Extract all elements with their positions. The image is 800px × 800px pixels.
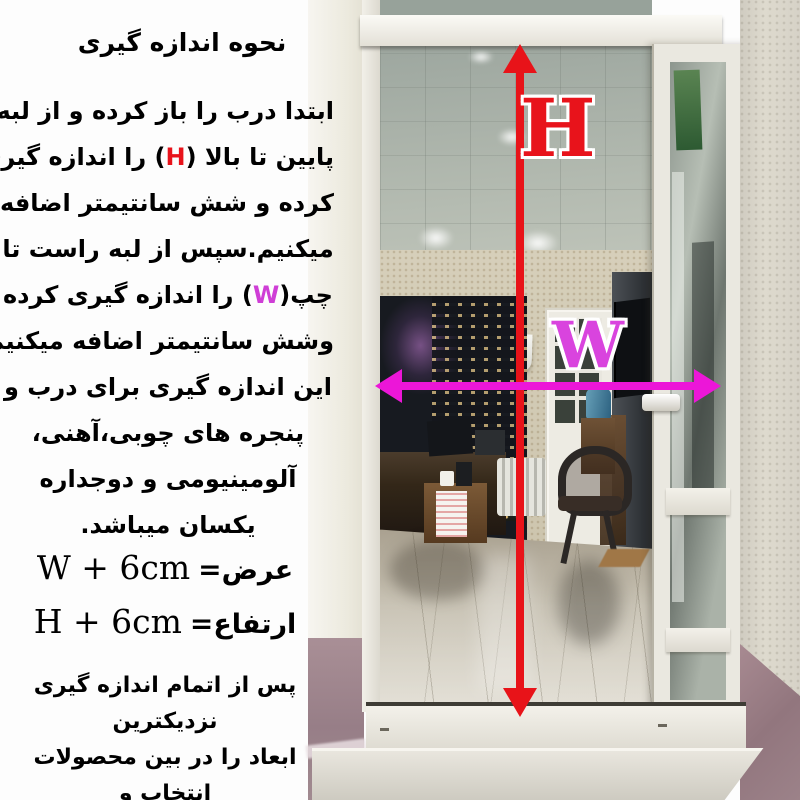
height-formula-expression: H + 6cm [34,602,182,641]
width-arrow-line [399,382,697,390]
page-title: نحوه اندازه گیری [12,28,352,57]
width-arrow-right-icon [694,369,721,403]
instruction-line: کرده و شش سانتیمتر اضافه [2,180,334,226]
measurement-guide: H W نحوه اندازه گیری ابتدا درب را باز کر… [0,0,800,800]
sill-screw [658,724,667,727]
width-marker-inline: W [253,281,279,309]
height-formula: H + 6cm = ارتفاع [0,602,330,641]
desk-monitor [427,419,473,457]
threshold-sill [366,702,746,752]
desk-item [456,462,472,486]
desk-equipment [475,430,505,455]
instruction-line: این اندازه گیری برای درب و [2,364,334,410]
door-handle [642,394,680,411]
footer-line: ابعاد را در بین محصولات انتخاب و [0,740,330,800]
line-text: پایین تا بالا ( [186,143,334,171]
instruction-line: چپ(W) را اندازه گیری کرده [2,272,334,318]
footer-line: پس از اتمام اندازه گیری نزدیکترین [0,668,330,740]
door-rail [666,488,730,515]
line-text: ) را اندازه گیری کرده [3,281,253,309]
instruction-paragraph: ابتدا درب را باز کرده و از لبه پایین تا … [2,88,334,548]
sill-screw [380,728,389,731]
mug [440,471,454,486]
marble-step [312,748,768,800]
line-text: ) را اندازه گیری [0,143,166,171]
door-rail [666,628,730,652]
height-marker-inline: H [166,143,186,171]
instruction-line: آلومینیومی و دوجداره [2,456,334,502]
equals-sign: = [198,553,221,586]
instruction-line: ابتدا درب را باز کرده و از لبه [2,88,334,134]
instruction-line: پنجره های چوبی،آهنی، [2,410,334,456]
height-arrow-up-icon [503,44,537,73]
transom-glass [380,0,652,16]
chair-seat [558,496,622,511]
line-text: چپ( [279,281,333,309]
instruction-panel: نحوه اندازه گیری ابتدا درب را باز کرده و… [0,0,340,800]
instruction-line: وشش سانتیمتر اضافه میکنیم. [2,318,334,364]
ceiling-light [468,50,494,64]
equals-sign: = [190,607,213,640]
water-cooler-bottle [586,388,611,419]
width-label: W [552,314,624,378]
chair [556,446,630,566]
height-arrow-down-icon [503,688,537,717]
instruction-line: پایین تا بالا (H) را اندازه گیری [2,134,334,180]
calendar-sheet [436,491,467,537]
green-poster-reflection [674,70,703,151]
chair-leg [560,510,577,564]
footer-note: پس از اتمام اندازه گیری نزدیکترین ابعاد … [0,668,330,800]
instruction-line: یکسان میباشد. [2,502,334,548]
width-arrow-left-icon [375,369,402,403]
instruction-line: میکنیم.سپس از لبه راست تا [2,226,334,272]
height-label: H [520,88,596,168]
floor-reflection [558,560,620,645]
width-formula-label: عرض [222,555,294,586]
transom-bar [360,15,722,46]
ceiling-light [418,226,454,250]
side-cabinet [424,483,487,543]
width-formula-expression: W + 6cm [37,548,190,587]
height-formula-label: ارتفاع [213,609,296,640]
floor-reflection [390,540,485,600]
width-formula: W + 6cm = عرض [0,548,330,587]
